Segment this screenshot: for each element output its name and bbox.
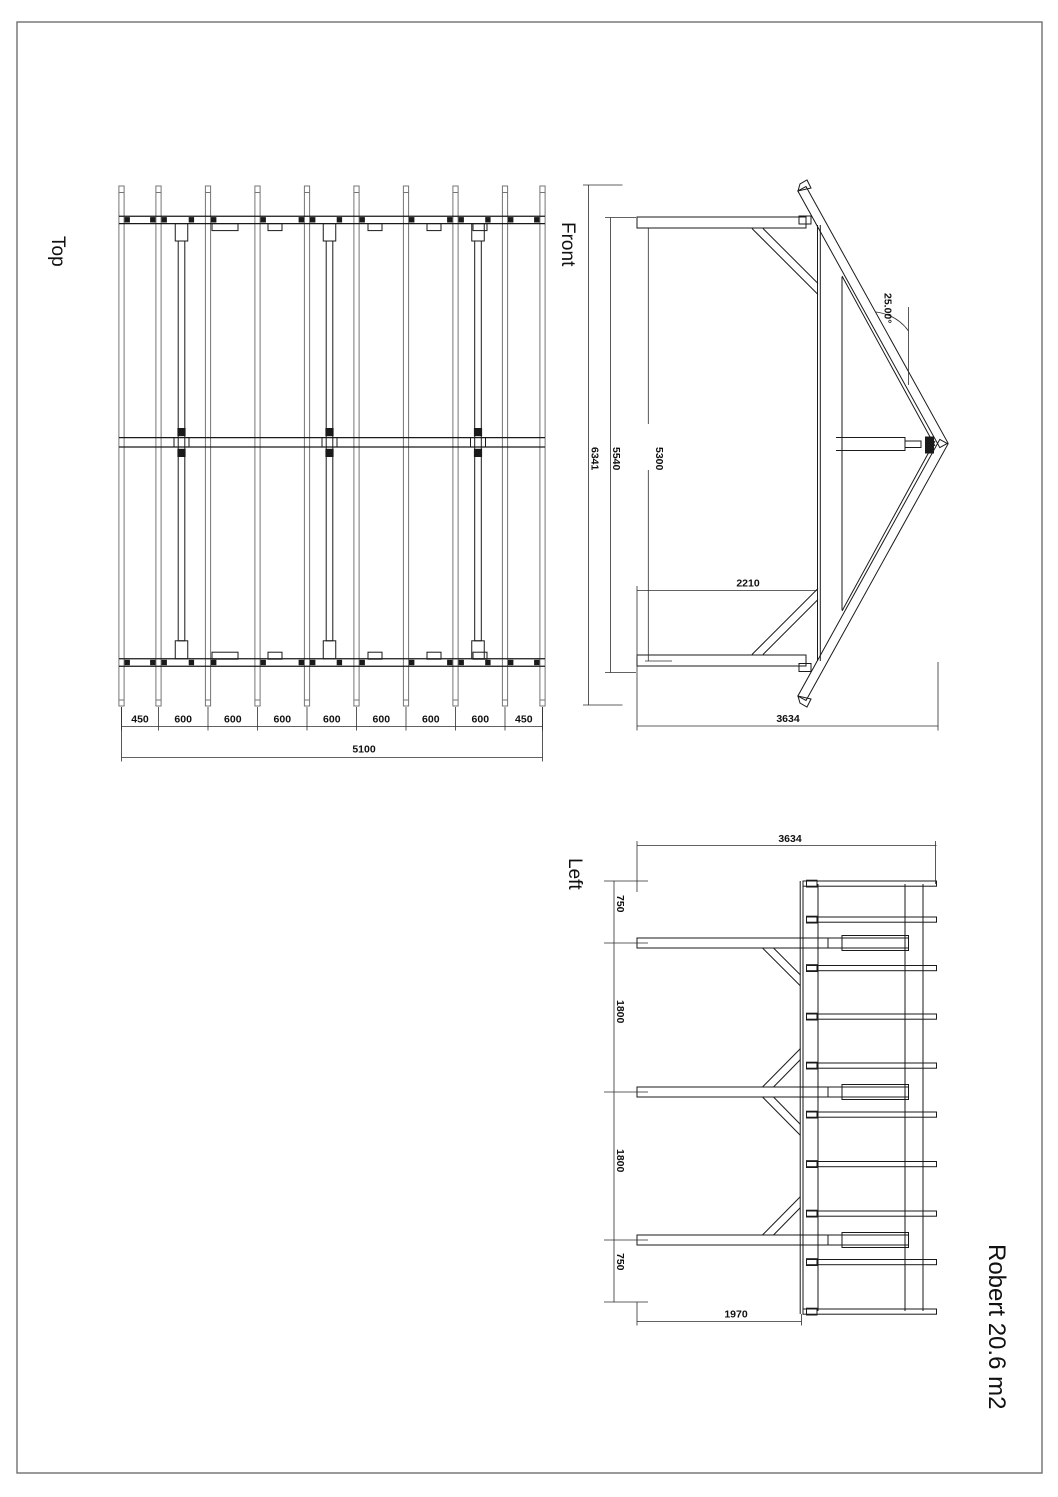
splice-tab xyxy=(212,652,238,659)
front-ridge-tenon xyxy=(905,441,921,448)
dim-top-seg-9: 450 xyxy=(515,714,533,726)
rafter xyxy=(453,186,458,706)
roof-slat xyxy=(807,1014,937,1019)
connector-plate xyxy=(409,217,414,222)
knee-brace xyxy=(774,948,801,975)
connector-plate xyxy=(474,428,482,436)
connector-plate xyxy=(299,660,304,665)
dim-front-overall: 6341 xyxy=(589,447,601,471)
roof-slat xyxy=(807,1112,937,1117)
post-head xyxy=(175,224,188,241)
connector-plate xyxy=(360,660,365,665)
dim-left-chain-4: 750 xyxy=(614,1253,626,1271)
connector-plate xyxy=(177,428,185,436)
knee-brace xyxy=(763,948,801,986)
connector-plate xyxy=(508,660,513,665)
connector-plate xyxy=(337,217,342,222)
drawing-sheet: 450 600 600 600 600 600 600 600 450 5100… xyxy=(0,0,1058,1497)
post-head xyxy=(472,224,485,241)
connector-plate xyxy=(534,217,539,222)
connector-plate xyxy=(485,660,490,665)
connector-plate xyxy=(310,217,315,222)
roof-slat xyxy=(807,1260,937,1265)
knee-brace xyxy=(774,1060,801,1088)
top-view: 450 600 600 600 600 600 600 600 450 5100… xyxy=(47,186,545,762)
front-brace-upper xyxy=(763,229,818,284)
roof-slat xyxy=(803,881,937,886)
connector-plate xyxy=(325,428,333,436)
connector-plate xyxy=(337,660,342,665)
post-head xyxy=(175,641,188,659)
post-head xyxy=(472,641,485,659)
connector-plate xyxy=(211,660,216,665)
front-post-top xyxy=(637,217,806,228)
knee-brace xyxy=(763,1097,801,1136)
dim-top-seg-1: 450 xyxy=(131,714,149,726)
connector-plate xyxy=(459,660,464,665)
knee-brace xyxy=(763,1049,801,1088)
dim-top-seg-6: 600 xyxy=(373,714,391,726)
page-border xyxy=(17,22,1042,1473)
front-post-bottom-tab xyxy=(799,664,811,672)
connector-plate xyxy=(459,217,464,222)
splice-tab xyxy=(368,652,382,659)
connector-plate xyxy=(162,217,167,222)
rafter xyxy=(119,186,124,706)
front-view-structure xyxy=(637,180,948,707)
connector-plate xyxy=(447,660,452,665)
dim-left-base: 1970 xyxy=(724,1309,748,1321)
connector-plate xyxy=(177,449,185,457)
connector-plate xyxy=(211,217,216,222)
dim-top-total: 5100 xyxy=(352,744,376,756)
roof-slat xyxy=(807,1211,937,1216)
title-block-text: Robert 20.6 m2 xyxy=(983,1244,1010,1409)
rafter xyxy=(403,186,408,706)
dim-left-chain-2: 1800 xyxy=(614,1000,626,1024)
connector-plate xyxy=(299,217,304,222)
dim-left-chain-3: 1800 xyxy=(614,1149,626,1173)
roof-slat xyxy=(807,1162,937,1167)
splice-tab xyxy=(473,652,487,659)
knee-brace xyxy=(763,1197,801,1236)
splice-tab xyxy=(368,224,382,231)
dim-top-seg-8: 600 xyxy=(472,714,490,726)
splice-tab xyxy=(212,224,238,231)
left-view: 3634 750 1800 1800 750 1970 Left xyxy=(564,833,937,1326)
post-head xyxy=(323,641,336,659)
rafter xyxy=(304,186,309,706)
post-body xyxy=(326,241,333,641)
connector-plate xyxy=(125,217,130,222)
dim-top-seg-3: 600 xyxy=(224,714,242,726)
front-view-dimensions xyxy=(583,185,938,731)
connector-plate xyxy=(310,660,315,665)
rafter xyxy=(255,186,260,706)
front-view-label: Front xyxy=(557,222,578,267)
left-view-label: Left xyxy=(564,858,585,890)
rafter xyxy=(354,186,359,706)
drawing-canvas: 450 600 600 600 600 600 600 600 450 5100… xyxy=(0,0,1058,1497)
dim-top-seg-2: 600 xyxy=(174,714,192,726)
splice-tab xyxy=(268,224,282,231)
rafter xyxy=(540,186,545,706)
dim-top-seg-5: 600 xyxy=(323,714,341,726)
connector-plate xyxy=(409,660,414,665)
knee-brace xyxy=(774,1097,801,1125)
dim-front-roof: 5540 xyxy=(610,447,622,471)
left-post xyxy=(637,1235,909,1245)
connector-plate xyxy=(125,660,130,665)
splice-tab xyxy=(427,224,441,231)
dim-front-wall: 5300 xyxy=(653,447,665,471)
connector-plate xyxy=(360,217,365,222)
roof-slat xyxy=(807,917,937,922)
rafter xyxy=(156,186,161,706)
rafter xyxy=(205,186,210,706)
connector-plate xyxy=(261,660,266,665)
connector-plate xyxy=(534,660,539,665)
splice-tab xyxy=(473,224,487,231)
rafter xyxy=(502,186,507,706)
front-view: 6341 5540 5300 2210 3634 25.00° Front xyxy=(557,180,948,731)
dim-front-eave-height: 2210 xyxy=(736,578,760,590)
connector-plate xyxy=(508,217,513,222)
connector-plate xyxy=(189,660,194,665)
left-post xyxy=(637,938,909,948)
connector-plate xyxy=(150,217,155,222)
post-head xyxy=(323,224,336,241)
connector-plate xyxy=(485,217,490,222)
connector-plate xyxy=(447,217,452,222)
connector-plate xyxy=(162,660,167,665)
front-post-bottom xyxy=(637,655,806,666)
front-apex-plate xyxy=(925,437,934,454)
front-brace-lower xyxy=(763,600,818,655)
dim-front-roof-angle: 25.00° xyxy=(882,293,894,323)
dim-top-seg-4: 600 xyxy=(274,714,292,726)
roof-slat xyxy=(807,966,937,971)
post-body xyxy=(178,241,185,641)
connector-plate xyxy=(150,660,155,665)
left-view-dimensions xyxy=(614,841,937,1326)
left-post xyxy=(637,1087,909,1097)
splice-tab xyxy=(268,652,282,659)
connector-plate xyxy=(189,217,194,222)
connector-plate xyxy=(325,449,333,457)
dim-left-chain-1: 750 xyxy=(614,895,626,913)
dim-left-width: 3634 xyxy=(778,833,802,845)
roof-slat xyxy=(803,1309,937,1314)
front-ridge-beam xyxy=(842,438,905,451)
connector-plate xyxy=(261,217,266,222)
top-view-label: Top xyxy=(47,236,68,267)
post-body xyxy=(475,241,482,641)
knee-brace xyxy=(774,1208,801,1236)
roof-slat xyxy=(807,1063,937,1068)
connector-plate xyxy=(474,449,482,457)
front-rafter-lower xyxy=(842,441,935,611)
splice-tab xyxy=(427,652,441,659)
dim-top-seg-7: 600 xyxy=(422,714,440,726)
dim-front-total-height: 3634 xyxy=(776,713,800,725)
